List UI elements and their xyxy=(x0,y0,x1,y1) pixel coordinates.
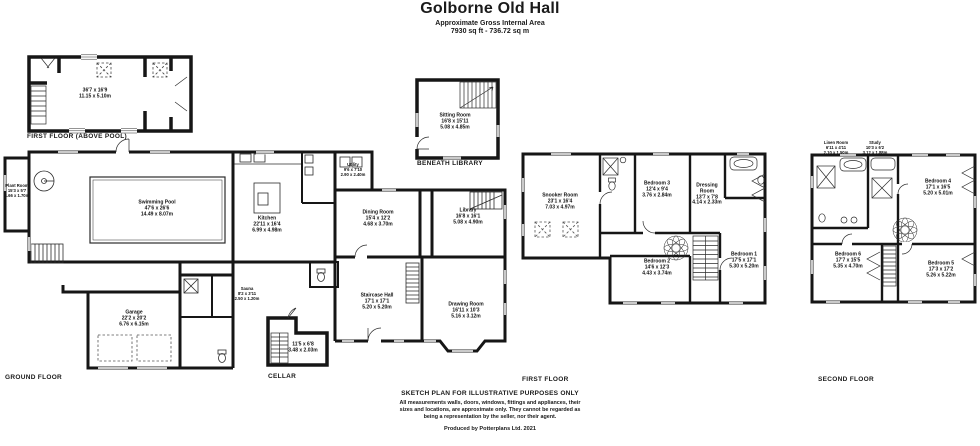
room-label-library: Library 16'8 x 16'1 5.08 x 4.90m xyxy=(453,208,482,225)
room-label-plant: Plant Room 15'3 x 5'7 4.66 x 1.70m xyxy=(5,184,30,198)
partitions xyxy=(600,154,765,303)
room-dims-m: 3.76 x 2.84m xyxy=(642,193,671,199)
room-name: Dressing Room xyxy=(692,184,722,196)
disclaimer-line1: All measurements walls, doors, windows, … xyxy=(0,400,980,407)
room-dims-m: 2.10 x 1.50m xyxy=(824,150,849,155)
caption-cellar: CELLAR xyxy=(268,373,296,380)
room-label-bed2: Bedroom 2 14'6 x 12'3 4.43 x 3.74m xyxy=(642,259,671,276)
room-dims-m: 7.03 x 4.97m xyxy=(542,205,578,211)
room-label-bed4: Bedroom 4 17'1 x 16'5 5.20 x 5.01m xyxy=(923,179,952,196)
caption-second-floor: SECOND FLOOR xyxy=(818,376,874,383)
producer-credit: Produced by Potterplans Ltd. 2021 xyxy=(0,426,980,432)
room-label-bed3: Bedroom 3 12'4 x 9'4 3.76 x 2.84m xyxy=(642,181,671,198)
room-dims-m: 5.35 x 4.70m xyxy=(833,264,862,270)
room-label-dressing: Dressing Room 13'7 x 7'8 4.14 x 2.33m xyxy=(692,184,722,207)
room-dims-m: 6.99 x 4.98m xyxy=(252,228,281,234)
footer: SKETCH PLAN FOR ILLUSTRATIVE PURPOSES ON… xyxy=(0,390,980,432)
room-dims-m: 4.66 x 1.70m xyxy=(5,193,30,198)
room-dims-m: 5.26 x 5.22m xyxy=(926,273,955,279)
room-label-study: Study 10'3 x 6'2 3.12 x 1.88m xyxy=(863,141,888,155)
room-dims-m: 5.20 x 5.01m xyxy=(923,191,952,197)
room-dims-m: 3.12 x 1.88m xyxy=(863,150,888,155)
doors xyxy=(415,137,429,149)
subtitle: Approximate Gross Internal Area xyxy=(0,20,980,27)
header: Golborne Old Hall Approximate Gross Inte… xyxy=(0,0,980,35)
caption-above-pool: FIRST FLOOR (ABOVE POOL) xyxy=(27,133,127,140)
room-label-utility: Utility 9'6 x 7'10 2.90 x 2.40m xyxy=(341,163,366,177)
room-label-bed5: Bedroom 5 17'3 x 17'2 5.26 x 5.22m xyxy=(926,261,955,278)
stairs xyxy=(460,82,496,108)
disclaimer-line2: sizes and locations, are approximate onl… xyxy=(0,407,980,414)
room-dims-m: 4.14 x 2.33m xyxy=(692,201,722,207)
caption-ground-floor: GROUND FLOOR xyxy=(5,374,62,381)
room-label-cellar: 11'5 x 6'8 3.48 x 2.03m xyxy=(288,342,317,354)
room-dims-m: 5.20 x 5.20m xyxy=(361,305,394,311)
room-label-bed6: Bedroom 6 17'7 x 15'5 5.35 x 4.70m xyxy=(833,252,862,269)
room-dims-m: 5.08 x 4.85m xyxy=(439,125,470,131)
caption-beneath-library: BENEATH LIBRARY xyxy=(417,160,483,167)
room-dims-m: 4.43 x 3.74m xyxy=(642,271,671,277)
room-dims-m: 11.15 x 5.10m xyxy=(79,94,111,100)
room-label-above-pool: 36'7 x 16'9 11.15 x 5.10m xyxy=(79,88,111,100)
room-label-garage: Garage 22'2 x 20'2 6.76 x 6.15m xyxy=(119,310,148,327)
room-dims-m: 4.68 x 3.70m xyxy=(362,222,393,228)
gross-area: 7930 sq ft - 736.72 sq m xyxy=(0,28,980,35)
room-dims-m: 5.30 x 5.20m xyxy=(729,264,758,270)
room-label-linen: Linen Room 6'11 x 4'11 2.10 x 1.50m xyxy=(824,141,849,155)
room-dims-m: 5.08 x 4.90m xyxy=(453,220,482,226)
room-label-drawing: Drawing Room 16'11 x 10'3 5.16 x 3.12m xyxy=(448,302,483,319)
windows xyxy=(521,152,767,306)
room-label-snooker: Snooker Room 23'1 x 16'4 7.03 x 4.97m xyxy=(542,193,578,210)
room-label-bed1: Bedroom 1 17'5 x 17'1 5.30 x 5.20m xyxy=(729,252,758,269)
room-dims-m: 5.16 x 3.12m xyxy=(448,314,483,320)
room-label-kitchen: Kitchen 22'11 x 16'4 6.99 x 4.98m xyxy=(252,216,281,233)
room-label-sitting: Sitting Room 16'8 x 15'11 5.08 x 4.85m xyxy=(439,113,470,130)
room-label-pool: Swimming Pool 47'6 x 26'6 14.49 x 8.07m xyxy=(138,200,175,217)
page-title: Golborne Old Hall xyxy=(0,0,980,18)
disclaimer-line3: being a representation by the seller, no… xyxy=(0,414,980,421)
room-dims-m: 2.50 x 1.20m xyxy=(235,296,260,301)
rooflight-icon xyxy=(97,63,167,77)
walls xyxy=(523,154,765,303)
room-dims-m: 3.48 x 2.03m xyxy=(288,348,317,354)
snooker-marker-icon xyxy=(535,222,578,237)
room-label-dining: Dining Room 15'4 x 12'2 4.68 x 3.70m xyxy=(362,210,393,227)
disclaimer-title: SKETCH PLAN FOR ILLUSTRATIVE PURPOSES ON… xyxy=(0,390,980,397)
floorplan-page: Golborne Old Hall Approximate Gross Inte… xyxy=(0,0,980,446)
room-dims-m: 6.76 x 6.15m xyxy=(119,322,148,328)
room-label-staircase-hall: Staircase Hall 17'1 x 17'1 5.20 x 5.20m xyxy=(361,293,394,310)
garage-door-icon xyxy=(98,335,171,361)
room-label-sauna: Sauna 8'2 x 3'11 2.50 x 1.20m xyxy=(235,287,260,301)
room-dims-m: 2.90 x 2.40m xyxy=(341,172,366,177)
caption-first-floor: FIRST FLOOR xyxy=(522,376,569,383)
room-dims-m: 14.49 x 8.07m xyxy=(138,212,175,218)
